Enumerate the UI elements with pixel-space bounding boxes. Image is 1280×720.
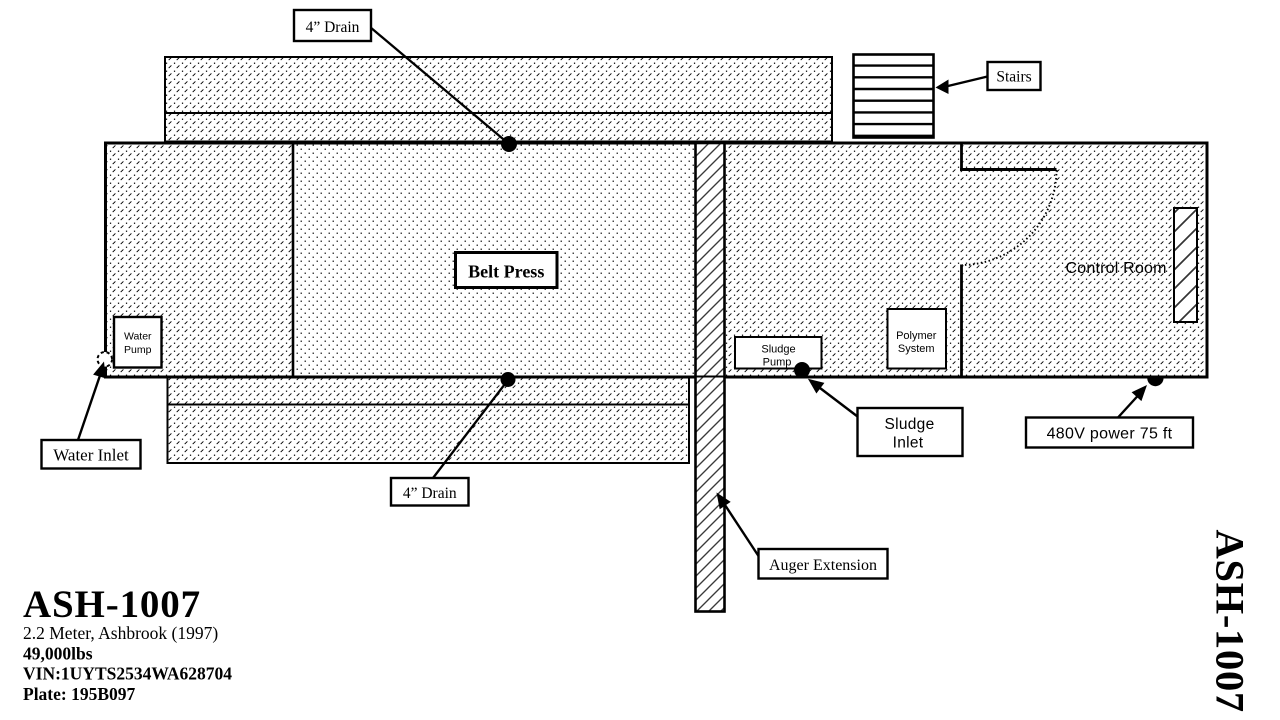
svg-text:Sludge: Sludge xyxy=(761,344,795,356)
svg-text:Sludge: Sludge xyxy=(884,416,934,433)
svg-text:Inlet: Inlet xyxy=(893,435,924,452)
svg-text:VIN:1UYTS2534WA628704: VIN:1UYTS2534WA628704 xyxy=(23,664,232,684)
svg-text:Stairs: Stairs xyxy=(996,69,1031,86)
svg-text:480V power 75 ft: 480V power 75 ft xyxy=(1047,426,1173,443)
svg-text:ASH-1007: ASH-1007 xyxy=(23,583,201,626)
svg-text:ASH-1007: ASH-1007 xyxy=(1208,530,1253,713)
svg-text:49,000lbs: 49,000lbs xyxy=(23,644,93,664)
svg-text:Pump: Pump xyxy=(763,357,792,369)
svg-text:Auger Extension: Auger Extension xyxy=(769,557,877,574)
svg-text:Belt Press: Belt Press xyxy=(468,262,544,282)
svg-text:Polymer: Polymer xyxy=(896,330,937,342)
svg-text:Control Room: Control Room xyxy=(1066,260,1167,277)
svg-text:Water: Water xyxy=(124,331,152,343)
svg-text:4” Drain: 4” Drain xyxy=(306,19,360,36)
svg-text:System: System xyxy=(898,343,935,355)
svg-text:4” Drain: 4” Drain xyxy=(403,485,457,502)
svg-text:Water Inlet: Water Inlet xyxy=(53,446,129,465)
svg-text:Plate: 195B097: Plate: 195B097 xyxy=(23,684,136,704)
svg-text:2.2 Meter, Ashbrook (1997): 2.2 Meter, Ashbrook (1997) xyxy=(23,623,218,643)
svg-text:Pump: Pump xyxy=(124,344,152,356)
